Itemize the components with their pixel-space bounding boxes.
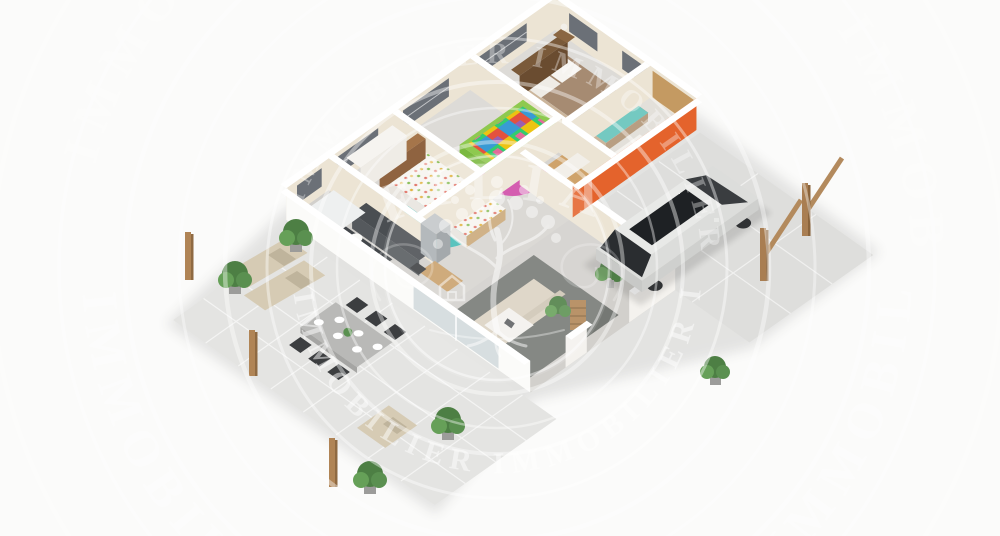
bedside-lamp: [561, 24, 568, 31]
floor-plan-render: IMMOBILIER IMMOBILIER IMMOBILIER IMMOBIL…: [0, 0, 1000, 536]
scene-canvas: IMMOBILIER IMMOBILIER IMMOBILIER IMMOBIL…: [0, 0, 1000, 536]
car-mirror: [675, 190, 680, 194]
wood-post: [249, 330, 258, 376]
wood-post: [185, 232, 194, 280]
wood-post: [329, 438, 338, 487]
